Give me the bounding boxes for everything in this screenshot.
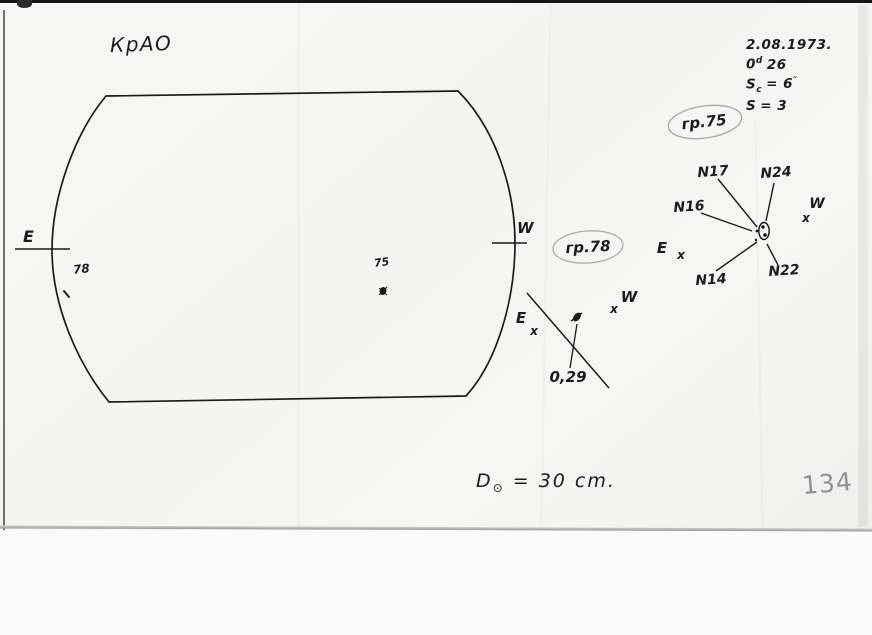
sketch78-east-label: E xyxy=(516,309,526,327)
group-78-spot-sketch xyxy=(571,311,583,323)
obs-info-block: 2.08.1973. 0d26 Sc= 6″ S= 3 xyxy=(746,37,832,114)
scanned-observation-sheet: КрАО 2.08.1973. 0d26 Sc= 6″ S= 3 гр.75 г… xyxy=(0,0,872,635)
pointer-n24-line xyxy=(766,183,774,221)
obs-date: 2.08.1973. xyxy=(746,37,832,53)
spot-75-label: 75 xyxy=(373,255,390,270)
sun-symbol: ⊙ xyxy=(493,481,505,495)
sketch75-east-mark: x xyxy=(677,248,685,262)
pointer-n17-line xyxy=(718,179,757,227)
page-number: 134 xyxy=(801,467,854,500)
diameter-value: = 30 cm. xyxy=(513,470,616,492)
disk-east-label: E xyxy=(23,227,34,246)
spot-n14-label: N14 xyxy=(695,271,727,289)
obs-time: 0d26 xyxy=(746,53,832,73)
spot-n22-label: N22 xyxy=(768,262,800,280)
group-78-tag: гр.78 xyxy=(565,237,611,257)
diameter-note: D⊙ = 30 cm. xyxy=(476,470,616,495)
sketch75-east-label: E xyxy=(657,239,667,257)
solar-disk-outline xyxy=(52,91,515,402)
group-75-spot-sketch xyxy=(755,223,769,242)
spot-78-mark xyxy=(64,291,69,297)
sketch78-west-mark: x xyxy=(610,302,618,316)
obs-s-index: S= 3 xyxy=(746,98,832,114)
spot-75-mark xyxy=(378,286,387,296)
sketch78-east-mark: x xyxy=(530,324,538,338)
pointer-n16-line xyxy=(701,213,752,231)
spot-n24-label: N24 xyxy=(760,164,792,182)
sketch75-west-mark: x xyxy=(802,211,810,225)
obs-seeing: Sc= 6″ xyxy=(746,73,832,98)
spot-n17-label: N17 xyxy=(697,163,729,181)
disk-west-label: W xyxy=(517,219,534,237)
sketch75-west-label: W xyxy=(809,196,824,212)
pointer-n14-line xyxy=(716,242,757,271)
group-78-pointer-line xyxy=(570,324,577,368)
spot-78-label: 78 xyxy=(72,261,90,277)
sketch78-west-label: W xyxy=(621,288,638,306)
spot-n16-label: N16 xyxy=(673,198,705,216)
drawing-linework xyxy=(0,0,872,635)
pointer-n22-line xyxy=(767,244,778,265)
diameter-d: D xyxy=(476,470,493,492)
sketch78-measure-label: 0,29 xyxy=(549,368,586,386)
observatory-label: КрАО xyxy=(110,31,173,57)
